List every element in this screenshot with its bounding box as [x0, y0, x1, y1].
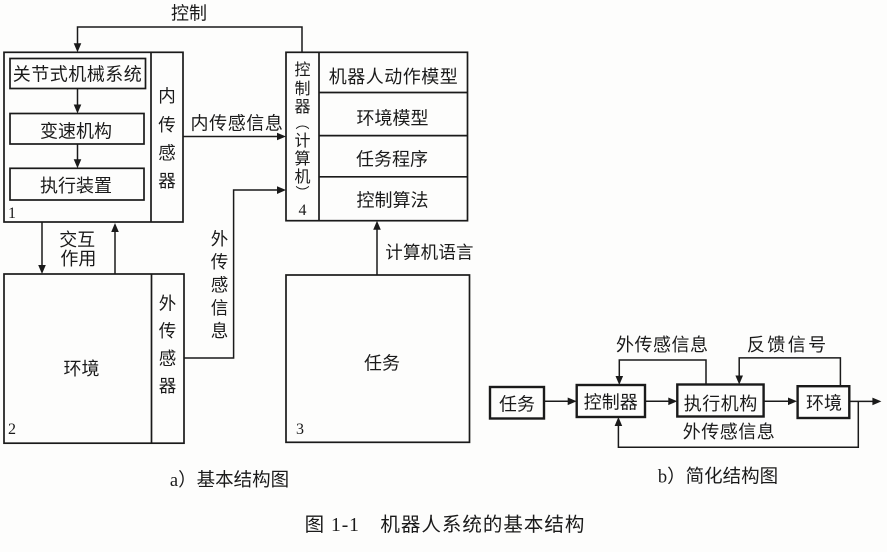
svg-text:任务: 任务	[499, 395, 535, 415]
svg-text:外传感信息: 外传感信息	[683, 422, 776, 442]
svg-text:感: 感	[159, 349, 177, 369]
svg-text:任务程序: 任务程序	[356, 150, 428, 170]
svg-text:器: 器	[159, 376, 177, 396]
svg-text:外: 外	[211, 229, 229, 249]
svg-text:内: 内	[158, 86, 176, 106]
svg-text:信: 信	[211, 298, 229, 318]
svg-text:1: 1	[8, 205, 16, 222]
svg-text:计: 计	[294, 132, 310, 150]
svg-text:传: 传	[158, 115, 176, 135]
svg-text:算: 算	[294, 149, 310, 168]
svg-text:执行机构: 执行机构	[684, 394, 758, 414]
svg-text:变速机构: 变速机构	[40, 122, 112, 142]
svg-text:a）基本结构图: a）基本结构图	[170, 470, 289, 491]
svg-text:机: 机	[294, 168, 310, 186]
svg-text:控制算法: 控制算法	[357, 191, 429, 211]
svg-text:任务: 任务	[364, 354, 400, 374]
svg-text:控制器: 控制器	[584, 393, 638, 413]
svg-text:内传感信息: 内传感信息	[191, 114, 284, 134]
svg-text:3: 3	[296, 421, 304, 438]
svg-text:计算机语言: 计算机语言	[385, 243, 474, 263]
svg-text:息: 息	[211, 321, 229, 341]
svg-text:︵: ︵	[296, 117, 310, 132]
svg-text:感: 感	[211, 275, 229, 295]
svg-text:感: 感	[158, 143, 176, 163]
svg-text:b）简化结构图: b）简化结构图	[658, 467, 778, 488]
svg-text:2: 2	[8, 421, 16, 438]
svg-text:传: 传	[211, 252, 229, 272]
svg-text:环境: 环境	[64, 359, 100, 379]
svg-text:机器人动作模型: 机器人动作模型	[329, 67, 459, 87]
svg-text:执行装置: 执行装置	[40, 176, 112, 196]
svg-text:传: 传	[159, 321, 177, 341]
svg-text:外: 外	[159, 294, 177, 314]
svg-text:关节式机械系统: 关节式机械系统	[13, 65, 143, 85]
svg-text:图 1-1 机器人系统的基本结构: 图 1-1 机器人系统的基本结构	[305, 514, 586, 536]
svg-text:控制: 控制	[171, 4, 207, 24]
svg-text:作用: 作用	[60, 249, 96, 269]
svg-text:制: 制	[294, 80, 310, 98]
svg-text:环境: 环境	[806, 394, 842, 414]
svg-text:器: 器	[158, 171, 176, 191]
svg-text:4: 4	[299, 202, 307, 219]
svg-text:器: 器	[294, 98, 310, 116]
svg-text:︶: ︶	[296, 186, 310, 202]
svg-text:交互: 交互	[59, 230, 95, 250]
svg-text:反馈信号: 反馈信号	[747, 335, 829, 355]
svg-text:外传感信息: 外传感信息	[616, 335, 709, 355]
svg-text:环境模型: 环境模型	[357, 109, 429, 129]
svg-text:控: 控	[294, 61, 310, 79]
